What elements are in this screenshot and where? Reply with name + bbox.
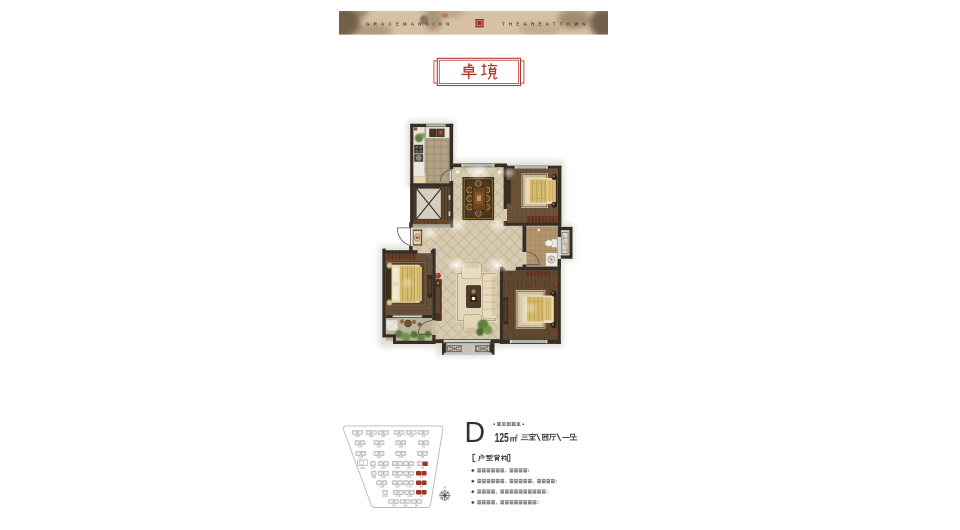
svg-text:22#: 22# (391, 503, 396, 507)
svg-text:10#: 10# (395, 475, 400, 479)
svg-text:21#: 21# (381, 475, 386, 479)
svg-text:13#: 13# (398, 455, 403, 459)
svg-text:THEGREATTOWN: THEGREATTOWN (502, 21, 590, 26)
svg-text:8#: 8# (415, 503, 419, 507)
svg-text:24#: 24# (358, 445, 363, 449)
svg-text:20#: 20# (379, 485, 384, 489)
svg-text:18#: 18# (395, 466, 400, 470)
svg-text:29#: 29# (381, 434, 386, 438)
svg-text:9#: 9# (420, 494, 424, 498)
svg-text:12#: 12# (397, 434, 402, 438)
svg-text:16#: 16# (398, 445, 403, 449)
svg-text:25#: 25# (355, 434, 360, 438)
svg-text:17#: 17# (396, 494, 401, 498)
svg-text:22#: 22# (395, 485, 400, 489)
svg-text:28#: 28# (381, 466, 386, 470)
svg-text:13#: 13# (409, 434, 414, 438)
svg-text:2#: 2# (422, 445, 426, 449)
svg-text:23#: 23# (371, 475, 376, 479)
svg-text:1#: 1# (422, 434, 426, 438)
svg-text:3#: 3# (421, 455, 425, 459)
svg-text:36#: 36# (360, 466, 365, 470)
svg-text:26#: 26# (377, 445, 382, 449)
svg-text:N: N (444, 486, 446, 490)
svg-text:7#: 7# (420, 475, 424, 479)
svg-text:15#: 15# (406, 466, 411, 470)
svg-text:8#: 8# (420, 485, 424, 489)
svg-text:10#: 10# (407, 494, 412, 498)
svg-text:20#: 20# (369, 434, 374, 438)
svg-text:22#: 22# (358, 455, 363, 459)
svg-text:21#: 21# (383, 494, 388, 498)
svg-text:12#: 12# (406, 475, 411, 479)
svg-text:D: D (465, 417, 486, 449)
svg-text:125: 125 (495, 430, 509, 445)
svg-text:27#: 27# (371, 466, 376, 470)
svg-text:7-1#: 7-1# (406, 485, 412, 489)
svg-text:GRACEMANSION: GRACEMANSION (366, 21, 453, 26)
svg-text:11#: 11# (377, 455, 382, 459)
svg-text:19#: 19# (403, 503, 408, 507)
svg-text:5#: 5# (421, 466, 425, 470)
